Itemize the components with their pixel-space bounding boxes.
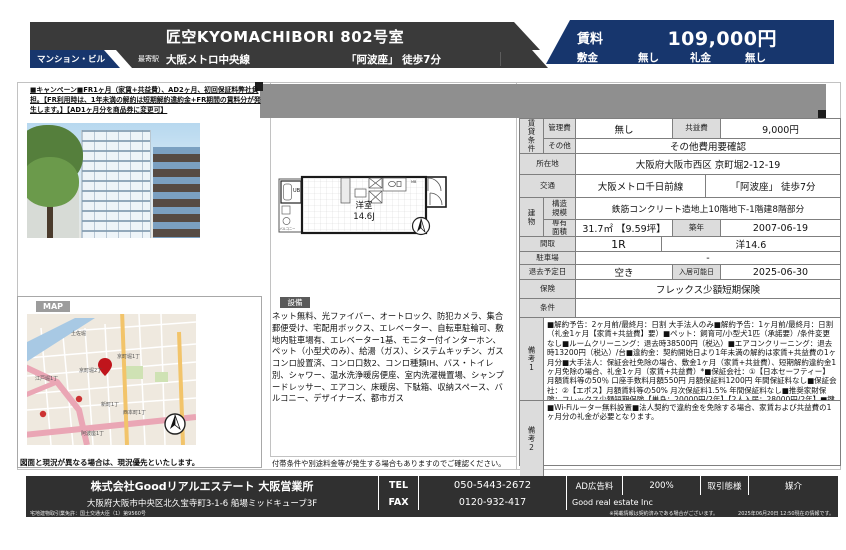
moveout-label: 退去予定日	[520, 265, 576, 279]
map-area-label: 阿波座1丁	[81, 430, 104, 437]
map-park-2	[155, 372, 168, 382]
insurance-label: 保険	[520, 280, 576, 298]
footer-ad-fee-value: 200%	[622, 476, 700, 495]
footer-license: 宅地建物取引業免許：国土交通大臣（1）第9560号	[30, 510, 146, 517]
map-area-label: 新町1丁	[101, 401, 119, 408]
structure-label: 構造 規模	[544, 198, 576, 219]
mgmt-fee-label: 管理費	[544, 119, 576, 138]
footer-row-1: 株式会社Goodリアルエステート 大阪営業所 TEL 050-5443-2672…	[26, 476, 838, 495]
remarks1-label: 備考1	[520, 318, 544, 400]
photo-building-main	[81, 130, 151, 238]
layout-label: 間取	[520, 237, 576, 251]
footer-deal-type-label: 取引態様	[700, 476, 748, 495]
row-layout: 間取 1R 洋14.6	[520, 237, 840, 252]
footer-disclaimer: ※掲載情報は契約済みである場合がございます。	[609, 510, 718, 517]
parking-value: -	[576, 252, 840, 264]
row-moveout: 退去予定日 空き 入居可能日 2025-06-30	[520, 265, 840, 280]
floorplan-balcony-label: バルコニー	[280, 227, 296, 231]
other-label: その他	[544, 139, 576, 153]
rent-label: 賃料	[577, 28, 603, 47]
property-flyer-page: { "header": { "title": "匠空KYOMACHIBORI 8…	[0, 0, 846, 550]
footer-company-name-en: Good real estate Inc	[566, 495, 838, 510]
row-access: 交通 大阪メトロ千日前線 「阿波座」 徒歩7分	[520, 175, 840, 198]
photo-tree-foliage-2	[27, 157, 79, 207]
row-remarks-1: 備考1 ■解約予告：2ヶ月前/最終月：日割 大手法人のみ■解約予告：1ヶ月前/最…	[520, 318, 840, 401]
group-label-rental: 賃貸条件	[520, 119, 544, 153]
map-title-text: MAP	[43, 302, 63, 311]
property-title-bar: 匠空KYOMACHIBORI 802号室	[30, 22, 540, 50]
floorplan-toilet	[383, 178, 406, 191]
floorplan-mb-label: MB	[411, 180, 417, 184]
footer-company-address: 大阪府大阪市中央区北久宝寺町3-1-6 船場ミッドキューブ3F	[26, 495, 378, 510]
structure-value: 鉄筋コンクリート造地上10階地下-1階建8階部分	[576, 198, 840, 219]
property-details-table: 賃貸条件 管理費 無し 共益費 9,000円 その他 その他費用要確認 所在地 …	[519, 118, 841, 466]
area-label: 専有 面積	[544, 220, 576, 236]
floorplan-room-size: 14.6J	[353, 212, 374, 222]
row-address: 所在地 大阪府大阪市西区 京町堀2-12-19	[520, 154, 840, 175]
equipment-note: 付帯条件や別途料金等が発生する場合もありますのでご確認ください。	[272, 459, 512, 469]
mgmt-fee-value: 無し	[576, 119, 673, 138]
rent-value: 109,000円	[667, 24, 777, 51]
access-walk-value: 「阿波座」 徒歩7分	[706, 175, 840, 197]
map-title: MAP	[36, 301, 70, 312]
row-insurance: 保険 フレックス少額短期保険	[520, 280, 840, 299]
column-divider-right	[516, 82, 517, 470]
remarks2-label: 備考2	[520, 401, 544, 477]
map-compass-icon	[165, 414, 185, 434]
access-label: 交通	[520, 175, 576, 197]
movein-label: 入居可能日	[673, 265, 721, 279]
layout-detail-value: 洋14.6	[662, 237, 840, 251]
footer-tel-number: 050-5443-2672	[418, 476, 566, 495]
area-value: 31.7㎡ 【9.59坪】	[576, 220, 673, 236]
station-line: 大阪メトロ中央線	[166, 52, 250, 67]
floorplan-image: UB MB バルコニー 洋室 14.6J	[278, 175, 453, 237]
deposit-label: 敷金	[577, 50, 598, 65]
key-money-value: 無し	[745, 50, 766, 65]
photo-tree-trunk	[47, 203, 53, 238]
photo-building-right	[153, 147, 200, 238]
svg-text:UB: UB	[293, 188, 301, 194]
common-fee-label: 共益費	[673, 119, 721, 138]
footer-fine-print: 宅地建物取引業免許：国土交通大臣（1）第9560号 ※掲載情報は契約済みである場…	[26, 510, 838, 517]
row-building: 建物 構造 規模 鉄筋コンクリート造地上10階地下-1階建8階部分 専有 面積 …	[520, 198, 840, 237]
row-rental-conditions: 賃貸条件 管理費 無し 共益費 9,000円 その他 その他費用要確認	[520, 119, 840, 154]
floorplan-compass-icon	[413, 218, 430, 235]
station-bar: 最寄駅 大阪メトロ中央線 「阿波座」 徒歩7分	[116, 50, 548, 68]
address-value: 大阪府大阪市西区 京町堀2-12-19	[576, 154, 840, 174]
footer-tel-label: TEL	[378, 476, 418, 495]
built-value: 2007-06-19	[721, 220, 840, 236]
footer-fax-number: 0120-932-417	[418, 495, 566, 510]
deposit-value: 無し	[638, 50, 659, 65]
column-divider-left	[270, 82, 271, 456]
map-station-marker	[76, 396, 82, 402]
redacted-banner	[260, 84, 826, 118]
footer-row-2: 大阪府大阪市中央区北久宝寺町3-1-6 船場ミッドキューブ3F FAX 0120…	[26, 495, 838, 510]
parking-label: 駐車場	[520, 252, 576, 264]
rent-box: 賃料 109,000円 敷金 無し 礼金 無し	[546, 20, 834, 64]
map-area-label: 京町堀1丁	[117, 353, 140, 360]
floorplan-room-label: 洋室	[355, 200, 373, 211]
equipment-title-text: 設備	[288, 297, 303, 308]
middle-column-divider	[270, 456, 516, 457]
condition-label: 条件	[520, 299, 576, 317]
property-title: 匠空KYOMACHIBORI 802号室	[166, 26, 404, 47]
moveout-value: 空き	[576, 265, 673, 279]
row-remarks-2: 備考2 ■Wi-Fiルーター無料設置■法人契約で違約金を免除する場合、家賃および…	[520, 401, 840, 477]
station-access: 「阿波座」 徒歩7分	[346, 52, 441, 67]
floorplan-stove	[355, 189, 366, 197]
floorplan-unit-bath: UB	[281, 181, 301, 203]
map-area-label: 江戸堀1丁	[35, 375, 58, 382]
footer-ad-fee-label: AD広告料	[566, 476, 622, 495]
building-photo	[27, 123, 200, 238]
station-bar-divider	[500, 52, 501, 66]
insurance-value: フレックス少額短期保険	[576, 280, 840, 298]
row-condition: 条件	[520, 299, 840, 318]
floorplan-entrance	[426, 177, 446, 207]
equipment-list: ネット無料、光ファイバー、オートロック、防犯カメラ、集合郵便受け、宅配用ボックス…	[272, 311, 508, 405]
layout-value: 1R	[576, 237, 662, 251]
station-label: 最寄駅	[138, 54, 159, 64]
map-area-label: 西本町1丁	[123, 409, 146, 416]
footer-timestamp: 2025年06月20日 12:50現在の情報です。	[738, 510, 834, 517]
address-label: 所在地	[520, 154, 576, 174]
movein-value: 2025-06-30	[721, 265, 840, 279]
group-label-building: 建物	[520, 198, 544, 236]
footer-company-name: 株式会社Goodリアルエステート 大阪営業所	[26, 476, 378, 495]
key-money-label: 礼金	[690, 50, 711, 65]
other-value: その他費用要確認	[576, 139, 840, 153]
campaign-note: ■キャンペーン■FR1ヶ月（家賃+共益費）、AD2ヶ月、初回保証料弊社負担。【F…	[30, 86, 264, 116]
floorplan-kitchen-counter	[341, 178, 350, 203]
built-label: 築年	[673, 220, 721, 236]
condition-value	[576, 299, 840, 317]
remarks2-text: ■Wi-Fiルーター無料設置■法人契約で違約金を免除する場合、家賃および共益費の…	[544, 401, 840, 477]
access-line-value: 大阪メトロ千日前線	[576, 175, 706, 197]
map-disclaimer: 図面と現況が異なる場合は、現況優先といたします。	[20, 457, 262, 468]
remarks1-text: ■解約予告：2ヶ月前/最終月：日割 大手法人のみ■解約予告：1ヶ月前/最終月：日…	[544, 318, 840, 400]
map-area-label: 土佐堀	[71, 330, 86, 337]
footer-fax-label: FAX	[378, 495, 418, 510]
property-type-tag: マンション・ビル	[30, 50, 120, 68]
common-fee-value: 9,000円	[721, 119, 840, 138]
equipment-title: 設備	[280, 297, 310, 308]
map-area-label: 京町堀2丁	[79, 367, 102, 374]
map-station-marker-2	[40, 411, 46, 417]
map-image: 土佐堀 京町堀1丁 京町堀2丁 江戸堀1丁 新町1丁 西本町1丁 阿波座1丁	[27, 314, 196, 445]
row-parking: 駐車場 -	[520, 252, 840, 265]
footer-deal-type-value: 媒介	[748, 476, 838, 495]
property-type-label: マンション・ビル	[37, 53, 105, 65]
